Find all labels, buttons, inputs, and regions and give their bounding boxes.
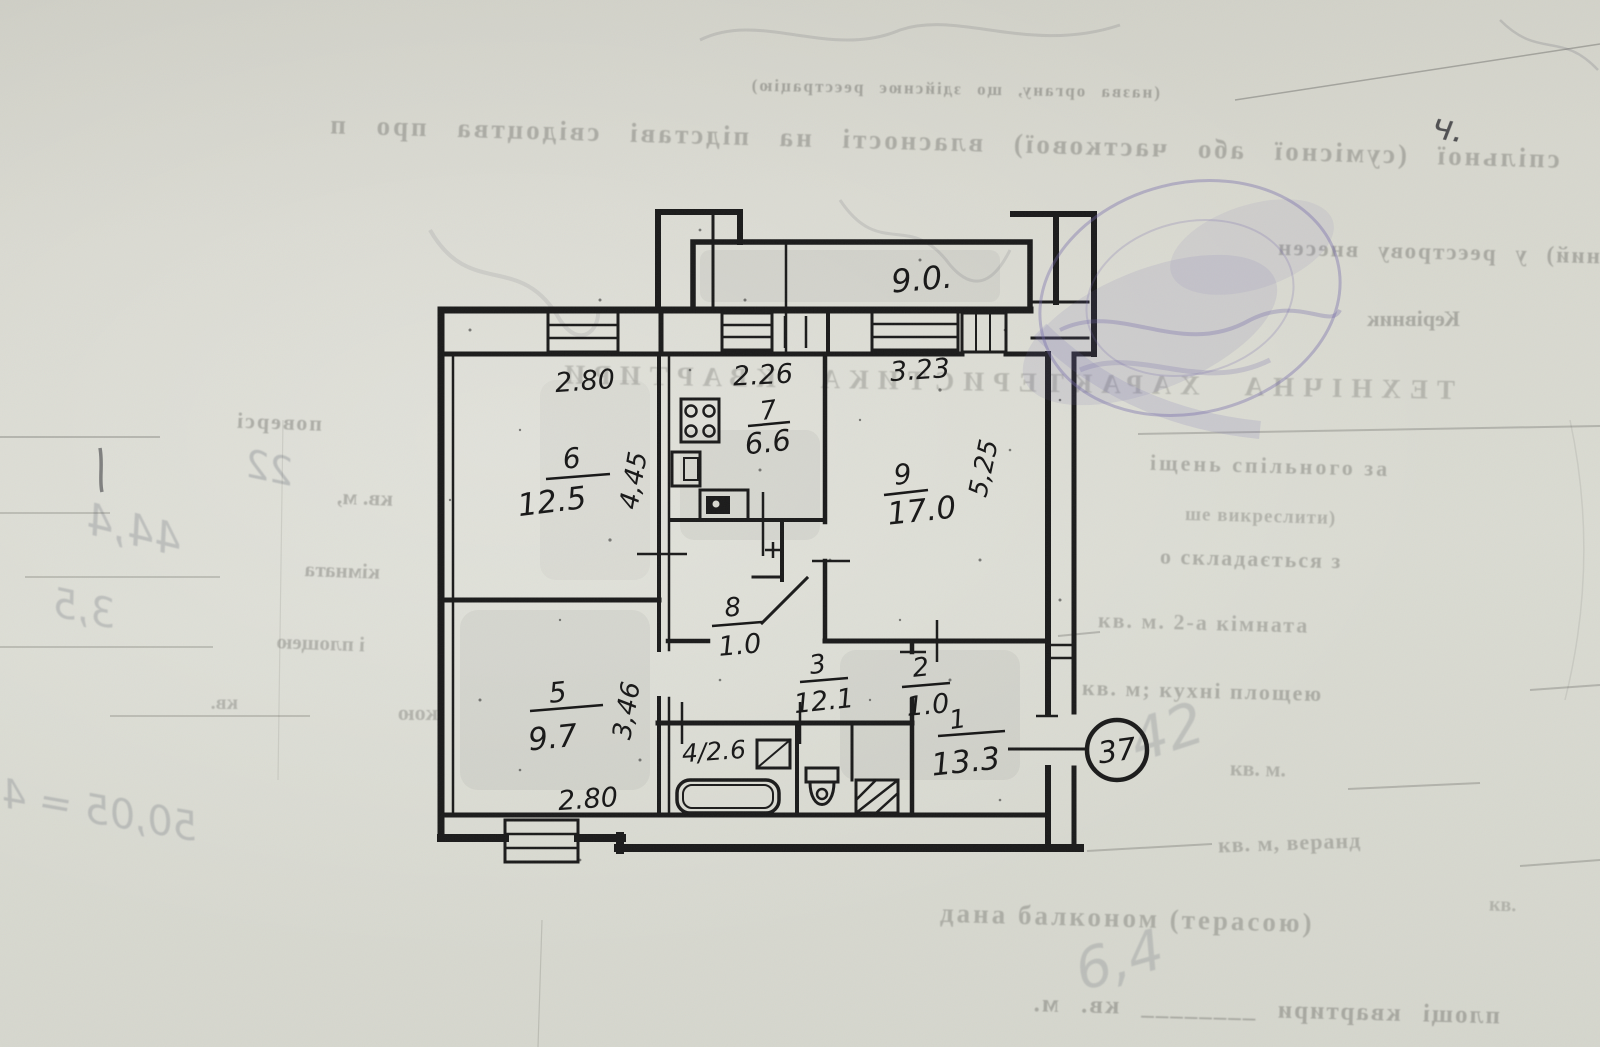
paper-grain	[0, 0, 1600, 1047]
scanned-document-page: (назва органу, що здійснює реєстрацію) с…	[0, 0, 1600, 1047]
